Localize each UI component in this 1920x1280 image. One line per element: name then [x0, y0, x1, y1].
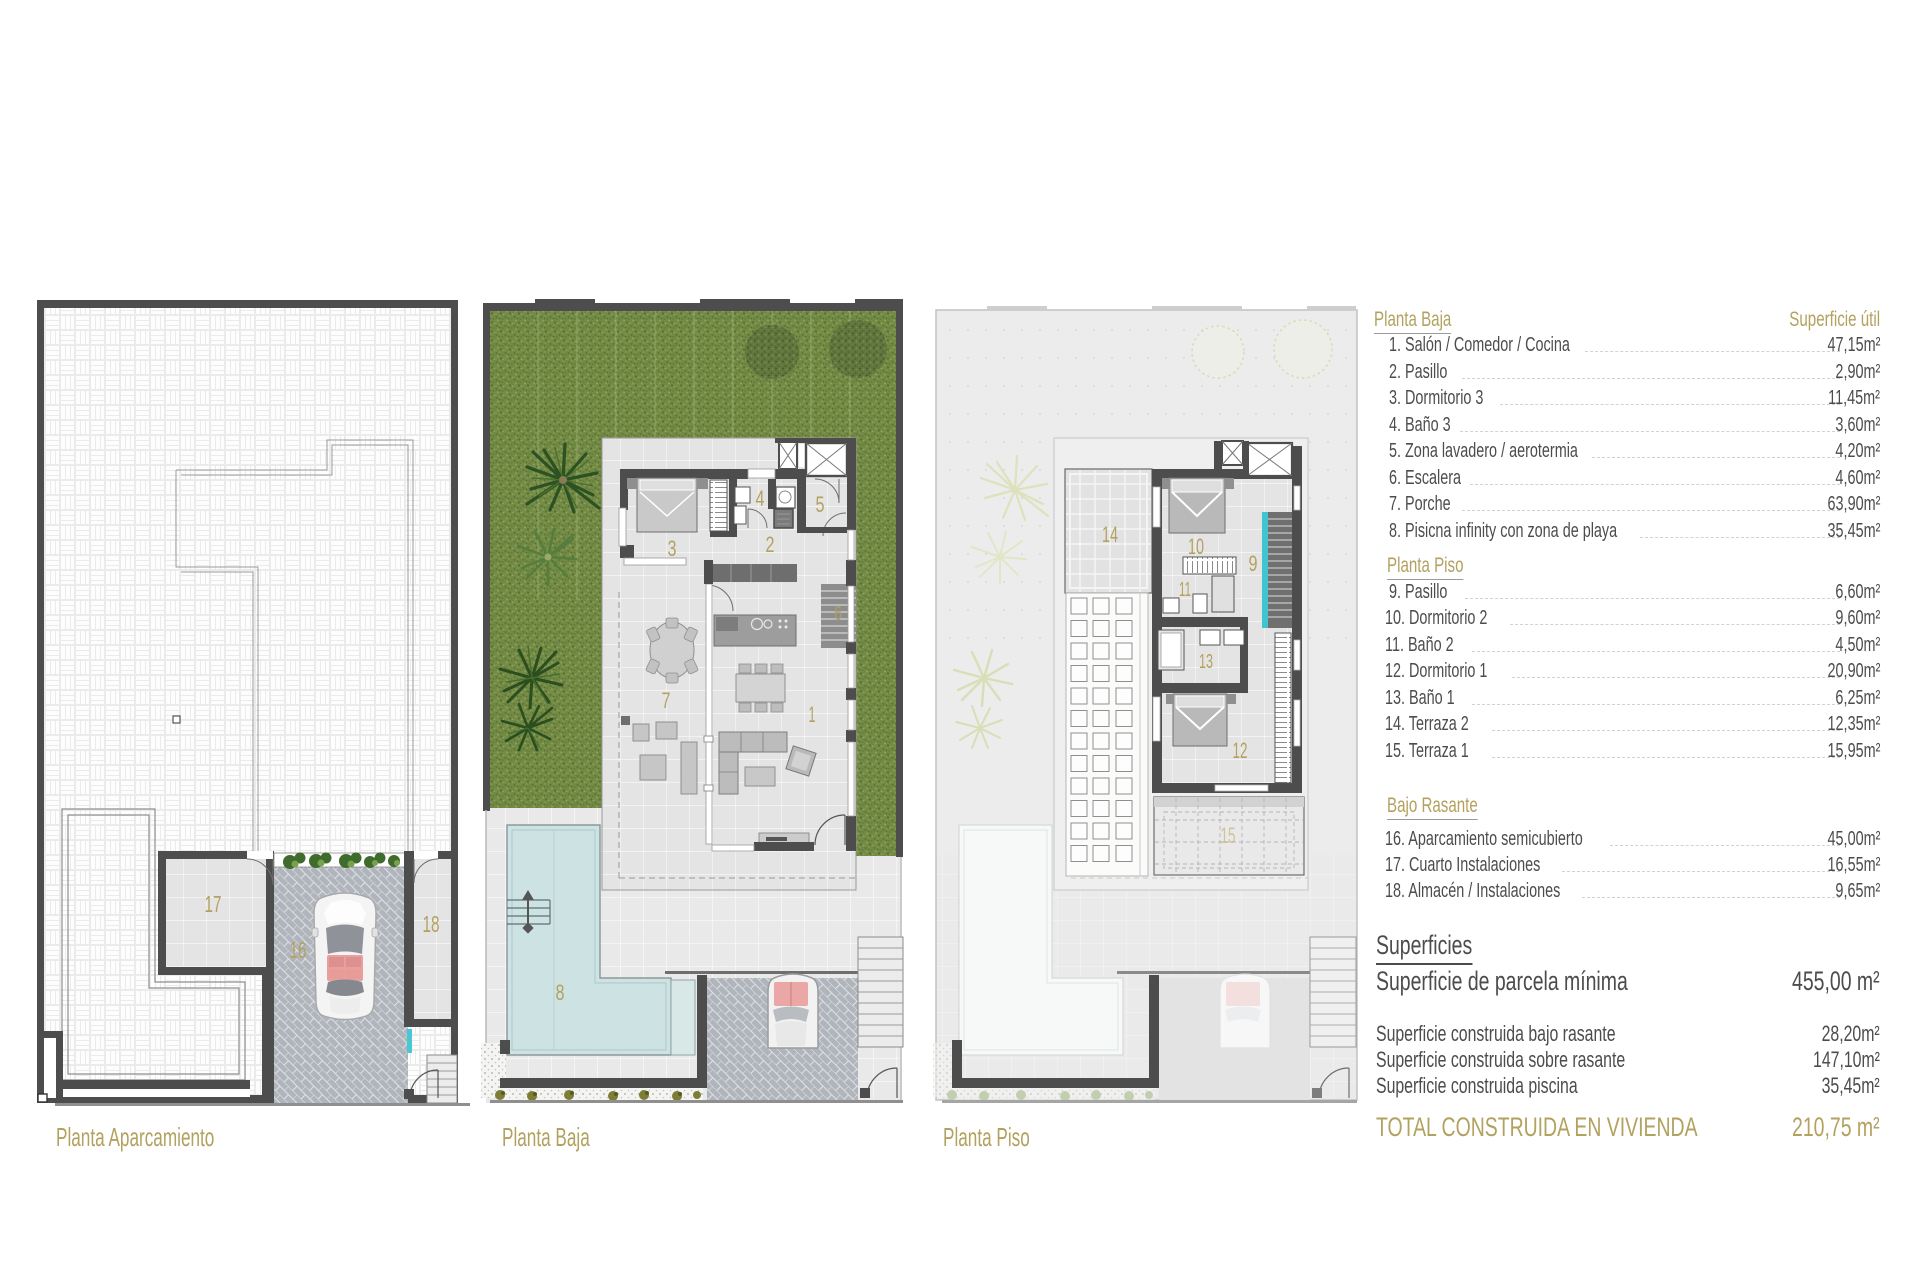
svg-text:3: 3 [668, 536, 677, 561]
svg-text:9: 9 [1249, 551, 1258, 576]
svg-text:16: 16 [290, 937, 307, 963]
svg-text:13: 13 [1199, 651, 1213, 673]
svg-text:4: 4 [756, 486, 765, 511]
svg-text:17: 17 [205, 891, 222, 917]
svg-text:12: 12 [1233, 738, 1248, 763]
svg-text:5: 5 [816, 492, 825, 517]
svg-text:18: 18 [423, 911, 440, 937]
svg-text:1: 1 [809, 702, 816, 727]
svg-text:2: 2 [766, 532, 775, 557]
svg-text:7: 7 [662, 688, 671, 713]
svg-text:6: 6 [834, 603, 842, 625]
svg-text:11: 11 [1179, 579, 1191, 601]
svg-text:14: 14 [1102, 522, 1118, 547]
svg-text:8: 8 [556, 980, 565, 1005]
svg-text:15: 15 [1221, 823, 1236, 848]
svg-text:10: 10 [1188, 534, 1204, 559]
